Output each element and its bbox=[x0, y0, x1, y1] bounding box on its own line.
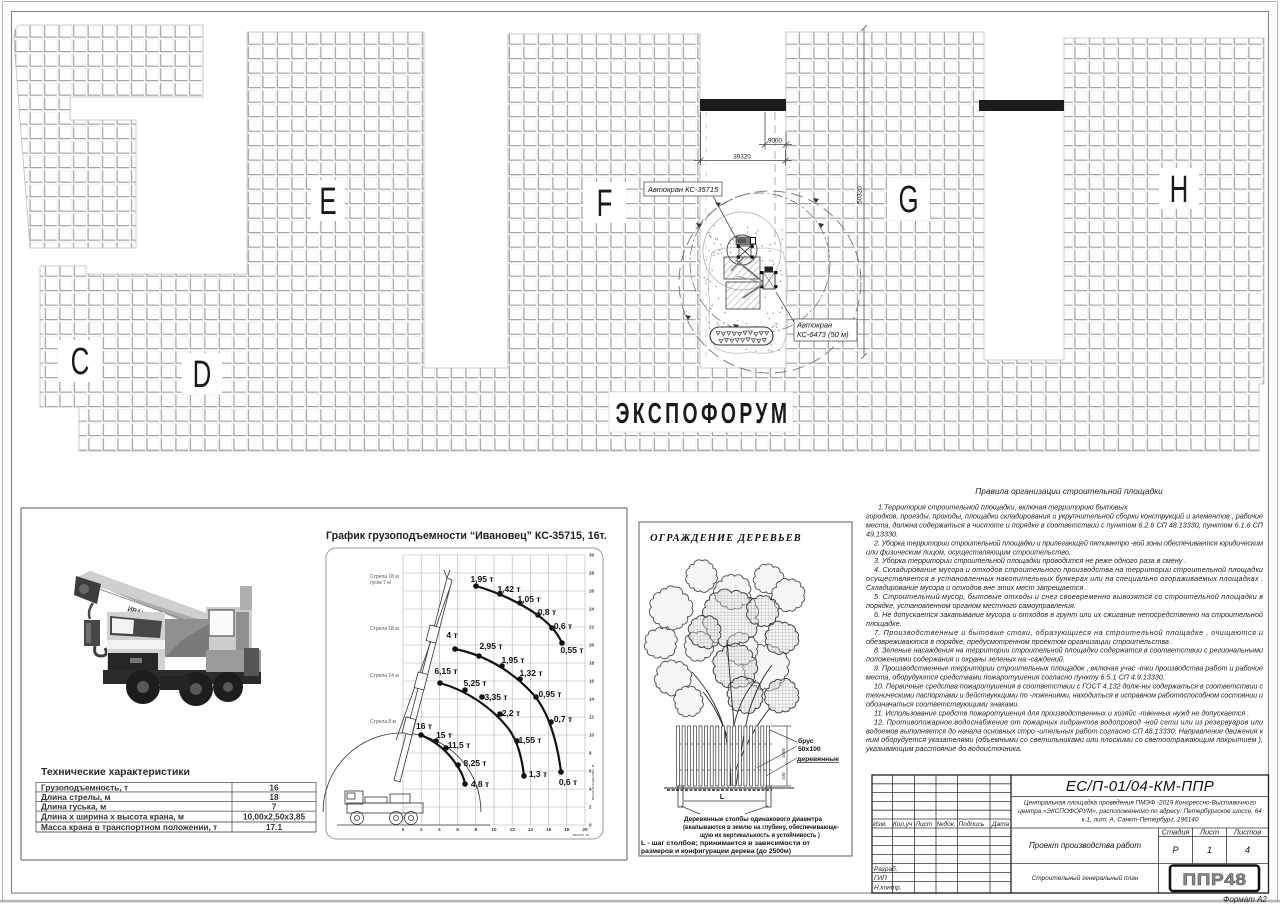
svg-text:10: 10 bbox=[491, 827, 497, 832]
svg-text:Дата: Дата bbox=[991, 821, 1010, 828]
svg-text:гусёк 7 м: гусёк 7 м bbox=[370, 580, 391, 586]
svg-text:Формат А2: Формат А2 bbox=[1223, 895, 1267, 904]
svg-text:4 т: 4 т bbox=[446, 630, 457, 640]
svg-text:Лист: Лист bbox=[1199, 828, 1219, 837]
svg-text:техническими паспортами и дейс: техническими паспортами и действующими п… bbox=[866, 691, 1263, 700]
svg-text:Деревянные столбы одинакового: Деревянные столбы одинакового диаметра bbox=[684, 815, 822, 823]
svg-text:7: 7 bbox=[272, 802, 277, 812]
svg-text:Стрела 8 м: Стрела 8 м bbox=[370, 719, 397, 725]
svg-text:15 т: 15 т bbox=[436, 730, 452, 740]
svg-text:2,2 т: 2,2 т bbox=[502, 708, 520, 718]
svg-text:0,95 т: 0,95 т bbox=[538, 689, 561, 699]
svg-text:ГИП: ГИП bbox=[874, 875, 887, 882]
svg-text:0,8 т: 0,8 т bbox=[538, 607, 556, 617]
svg-text:деревянные: деревянные bbox=[797, 756, 839, 763]
svg-text:Стадия: Стадия bbox=[1161, 828, 1189, 837]
svg-text:КС-6473 (50 м): КС-6473 (50 м) bbox=[797, 330, 849, 339]
svg-text:L: L bbox=[720, 794, 725, 801]
svg-text:8. Зеленые насаждения на терри: 8. Зеленые насаждения на территории стро… bbox=[874, 646, 1263, 655]
svg-text:центра «ЭКСПОФОРУМ», расположе: центра «ЭКСПОФОРУМ», расположенного по а… bbox=[1018, 807, 1262, 815]
svg-text:1,32 т: 1,32 т bbox=[519, 668, 542, 678]
svg-text:49.13330.: 49.13330. bbox=[866, 529, 898, 538]
svg-text:обезвреживаются в порядке, пре: обезвреживаются в порядке, предусмотренн… bbox=[866, 637, 1173, 646]
svg-text:размеров и конфигурации дерева: размеров и конфигурации дерева (до 2500м… bbox=[641, 848, 791, 855]
svg-text:Р: Р bbox=[1172, 845, 1178, 855]
svg-text:ОГРАЖДЕНИЕ ДЕРЕВЬЕВ: ОГРАЖДЕНИЕ ДЕРЕВЬЕВ bbox=[650, 533, 802, 544]
svg-text:Н.контр.: Н.контр. bbox=[874, 885, 902, 892]
svg-text:обозначаться соответствующими: обозначаться соответствующими знаками. bbox=[866, 699, 1019, 708]
svg-text:Стрела 18 м: Стрела 18 м bbox=[370, 626, 399, 632]
svg-text:G: G bbox=[898, 178, 918, 220]
svg-text:6. Не допускается закапывание: 6. Не допускается закапывание мусора и о… bbox=[874, 610, 1263, 619]
svg-text:4,8 т: 4,8 т bbox=[471, 779, 489, 789]
svg-text:Складирование мусора и отходов: Складирование мусора и отходов вне этих … bbox=[866, 583, 1087, 592]
svg-text:17.1: 17.1 bbox=[266, 822, 283, 832]
svg-text:1,95 т: 1,95 т bbox=[501, 655, 524, 665]
svg-text:14: 14 bbox=[528, 827, 534, 832]
svg-text:0,6 т: 0,6 т bbox=[559, 777, 577, 787]
svg-text:H: H bbox=[1170, 168, 1189, 210]
svg-text:12: 12 bbox=[589, 715, 595, 720]
svg-text:16: 16 bbox=[269, 782, 279, 792]
svg-text:указывающим расстояние до водо: указывающим расстояние до водоисточника. bbox=[865, 744, 1022, 753]
svg-text:Грузоподъемность, т: Грузоподъемность, т bbox=[41, 782, 128, 792]
svg-text:порядке, установленном орган: порядке, установленном органом местного … bbox=[866, 601, 1076, 610]
svg-text:6,15 т: 6,15 т bbox=[434, 666, 457, 676]
svg-text:Листов: Листов bbox=[1233, 828, 1261, 837]
svg-text:2. Уборка территории строитель: 2. Уборка территории строительной площад… bbox=[873, 538, 1263, 547]
svg-text:Правила организации строительн: Правила организации строительной площадк… bbox=[975, 486, 1163, 496]
svg-text:Длина х ширина х высота крана,: Длина х ширина х высота крана, м bbox=[41, 812, 184, 822]
svg-text:8,25 т: 8,25 т bbox=[463, 758, 486, 768]
svg-text:(вкапываются в землю на глубин: (вкапываются в землю на глубину, обеспеч… bbox=[683, 823, 839, 831]
svg-text:Стрела 14 м: Стрела 14 м bbox=[370, 673, 399, 679]
svg-text:водоемов выполняется до начала: водоемов выполняется до начала основных … bbox=[866, 726, 1264, 735]
svg-text:Подпись: Подпись bbox=[959, 820, 985, 828]
svg-text:1,95 т: 1,95 т bbox=[470, 574, 493, 584]
svg-text:4. Складирование мусора и отхо: 4. Складирование мусора и отходов строит… bbox=[874, 565, 1263, 574]
svg-text:ППР48: ППР48 bbox=[1182, 870, 1246, 889]
svg-text:Автокран: Автокран bbox=[796, 321, 832, 330]
svg-text:10,00х2,50х3,85: 10,00х2,50х3,85 bbox=[243, 812, 306, 822]
svg-text:12: 12 bbox=[510, 827, 516, 832]
svg-text:осуществляется в установленн: осуществляется в установленных накопител… bbox=[866, 574, 1263, 583]
svg-text:F: F bbox=[597, 182, 613, 224]
svg-text:Автокран КС-35715: Автокран КС-35715 bbox=[647, 185, 719, 194]
svg-text:Проект производства работ: Проект производства работ bbox=[1029, 841, 1141, 850]
svg-text:брус: брус bbox=[798, 737, 814, 745]
svg-text:5. Строительный мусор, бытовые: 5. Строительный мусор, бытовые отходы и … bbox=[874, 592, 1263, 601]
svg-text:16: 16 bbox=[546, 827, 552, 832]
svg-text:4: 4 bbox=[1245, 845, 1250, 855]
svg-text:100: 100 bbox=[781, 772, 786, 780]
svg-text:ЭКСПОФОРУМ: ЭКСПОФОРУМ bbox=[616, 398, 791, 430]
svg-text:9000: 9000 bbox=[768, 138, 783, 145]
svg-text:50320: 50320 bbox=[857, 186, 864, 204]
svg-text:1,55 т: 1,55 т bbox=[518, 735, 541, 745]
svg-text:3. Уборка территории строитель: 3. Уборка территории строительной площад… bbox=[874, 556, 1186, 565]
svg-text:24: 24 bbox=[589, 607, 595, 612]
svg-text:Изм.: Изм. bbox=[873, 821, 887, 828]
svg-text:Длина гуська, м: Длина гуська, м bbox=[41, 802, 106, 812]
svg-text:26: 26 bbox=[589, 589, 595, 594]
svg-text:1: 1 bbox=[1207, 845, 1212, 855]
svg-text:30: 30 bbox=[589, 553, 595, 558]
svg-text:Центральная площадка проведени: Центральная площадка проведения ПМЭФ -20… bbox=[1024, 799, 1257, 807]
svg-text:№док.: №док. bbox=[937, 820, 956, 828]
svg-text:1,3 т: 1,3 т bbox=[529, 769, 547, 779]
svg-text:5,25 т: 5,25 т bbox=[463, 678, 486, 688]
svg-text:10: 10 bbox=[589, 733, 595, 738]
svg-text:вылет, м: вылет, м bbox=[573, 832, 589, 837]
svg-text:ним оборудуется указателями (: ним оборудуется указателями (объемными с… bbox=[866, 735, 1263, 744]
svg-text:18: 18 bbox=[589, 661, 595, 666]
svg-text:50х100: 50х100 bbox=[798, 746, 821, 753]
svg-text:высота подъема, м: высота подъема, м bbox=[590, 764, 595, 800]
svg-text:39320: 39320 bbox=[733, 154, 751, 161]
svg-text:1.Территория строительной пл: 1.Территория строительной площадки, вклю… bbox=[878, 503, 1128, 512]
svg-text:Технические характеристики: Технические характеристики bbox=[41, 767, 190, 778]
svg-text:11. Использование средств пожа: 11. Использование средств пожаротушения … bbox=[874, 708, 1249, 717]
svg-text:Кол.уч: Кол.уч bbox=[893, 821, 913, 828]
svg-text:10. Первичные средства пожарот: 10. Первичные средства пожаротушения в с… bbox=[874, 682, 1263, 691]
svg-text:7. Производственные и бытовы: 7. Производственные и бытовые стоки, обр… bbox=[874, 628, 1263, 637]
svg-text:к.1, лит. А, Санкт-Петербург,: к.1, лит. А, Санкт-Петербург, 196140 bbox=[1082, 816, 1199, 824]
svg-text:щую их вертикальность и устойч: щую их вертикальность и устойчивость ) bbox=[700, 831, 820, 839]
svg-text:1,42 т: 1,42 т bbox=[497, 584, 520, 594]
svg-text:0,55 т: 0,55 т bbox=[560, 645, 583, 655]
svg-text:L - шаг столбов; принимается в: L - шаг столбов; принимается в зависимос… bbox=[641, 839, 811, 847]
svg-text:положениями содержания и охран: положениями содержания и охраны зеленых … bbox=[866, 655, 1065, 664]
svg-text:2,95 т: 2,95 т bbox=[479, 641, 502, 651]
svg-text:E: E bbox=[319, 180, 336, 222]
svg-text:12. Противопожарное водоснабже: 12. Противопожарное водоснабжение от пож… bbox=[874, 717, 1263, 726]
svg-text:1,05 т: 1,05 т bbox=[517, 594, 540, 604]
svg-text:Строительный генеральный план: Строительный генеральный план bbox=[1032, 874, 1139, 882]
svg-text:График грузоподъемности “Ивано: График грузоподъемности “Ивановец” КС-35… bbox=[326, 530, 607, 542]
svg-text:места, оборудуются средствами: места, оборудуются средствами пожаротуше… bbox=[866, 673, 1165, 682]
svg-text:Масса крана в транспортном пол: Масса крана в транспортном положении, т bbox=[41, 822, 217, 832]
svg-text:14: 14 bbox=[589, 697, 595, 702]
svg-text:16 т: 16 т bbox=[416, 721, 432, 731]
svg-text:или физическим лицом, осуществ: или физическим лицом, осуществляющим стр… bbox=[866, 547, 1071, 556]
svg-text:D: D bbox=[193, 353, 212, 395]
svg-text:0,7 т: 0,7 т bbox=[554, 714, 572, 724]
svg-text:городков, проезды, проходы, пл: городков, проезды, проходы, площадки скл… bbox=[866, 512, 1263, 521]
svg-text:ЕС/П-01/04-КМ-ППР: ЕС/П-01/04-КМ-ППР bbox=[1066, 778, 1214, 795]
svg-text:3,35 т: 3,35 т bbox=[484, 692, 507, 702]
svg-text:площадке.: площадке. bbox=[866, 619, 902, 628]
svg-text:28: 28 bbox=[589, 571, 595, 576]
svg-text:11,5 т: 11,5 т bbox=[448, 740, 471, 750]
svg-text:22: 22 bbox=[589, 625, 595, 630]
svg-text:0,6 т: 0,6 т bbox=[554, 621, 572, 631]
svg-text:18: 18 bbox=[269, 792, 279, 802]
svg-text:места, должна содержаться в чи: места, должна содержаться в чистоте и по… bbox=[866, 520, 1264, 529]
svg-text:20: 20 bbox=[589, 643, 595, 648]
svg-text:Разраб.: Разраб. bbox=[874, 865, 898, 873]
svg-text:16: 16 bbox=[589, 679, 595, 684]
svg-text:18: 18 bbox=[564, 827, 570, 832]
svg-text:Лист: Лист bbox=[915, 821, 933, 828]
svg-text:C: C bbox=[71, 340, 90, 382]
svg-text:9. Производственные территории: 9. Производственные территории строитель… bbox=[874, 664, 1263, 673]
svg-text:Длина стрелы, м: Длина стрелы, м bbox=[41, 792, 111, 802]
